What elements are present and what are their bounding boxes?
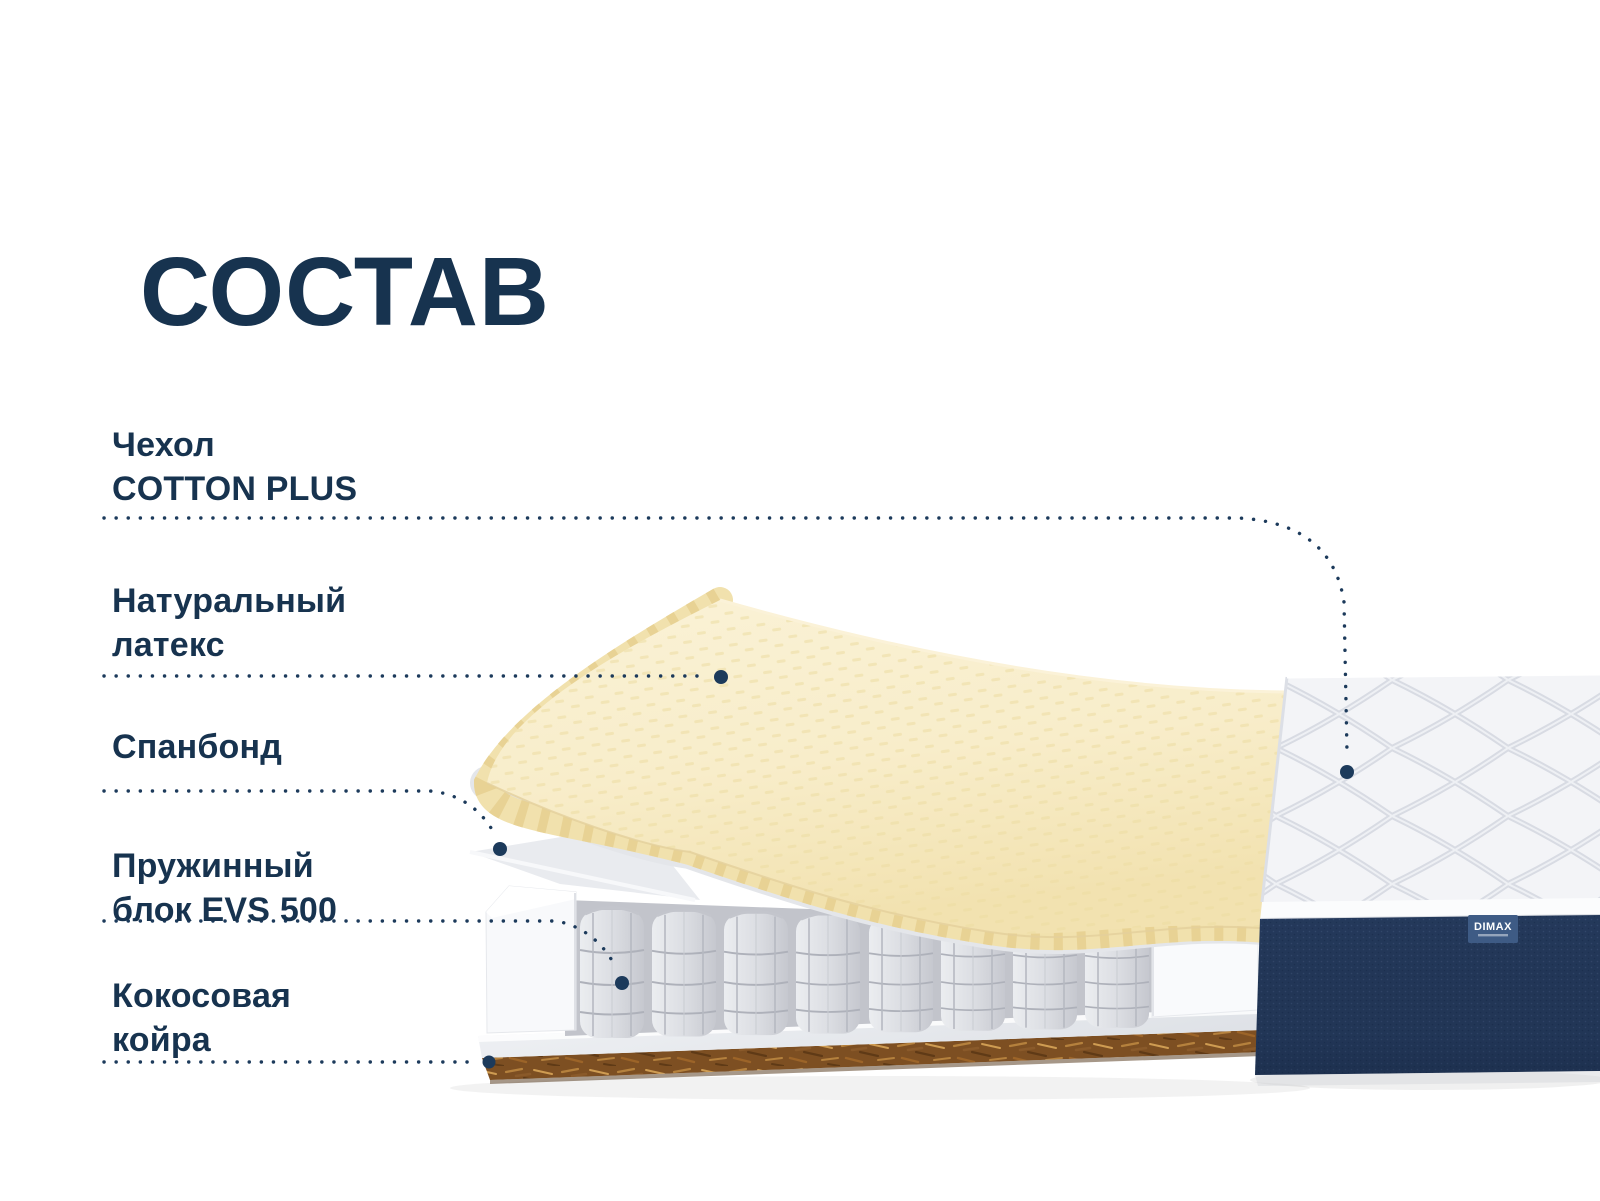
leader-spunbond bbox=[104, 791, 494, 833]
infographic-page: { "title": "СОСТАВ", "labels": { "cover"… bbox=[0, 0, 1600, 1201]
leader-dot-springs bbox=[615, 976, 629, 990]
mattress-illustration: DIMAX bbox=[0, 0, 1600, 1201]
leader-dot-latex bbox=[714, 670, 728, 684]
leader-dot-coir bbox=[483, 1056, 496, 1069]
foam-side-left bbox=[486, 886, 576, 1033]
brand-tag-subtitle-line bbox=[1478, 934, 1508, 936]
assembled-mattress: DIMAX bbox=[1255, 674, 1600, 1086]
navy-side-panel: DIMAX bbox=[1255, 915, 1600, 1075]
brand-tag-label: DIMAX bbox=[1474, 921, 1512, 933]
leader-dot-spunbond bbox=[493, 842, 507, 856]
leader-dot-cover bbox=[1340, 765, 1354, 779]
quilted-cover-top bbox=[1262, 674, 1600, 903]
